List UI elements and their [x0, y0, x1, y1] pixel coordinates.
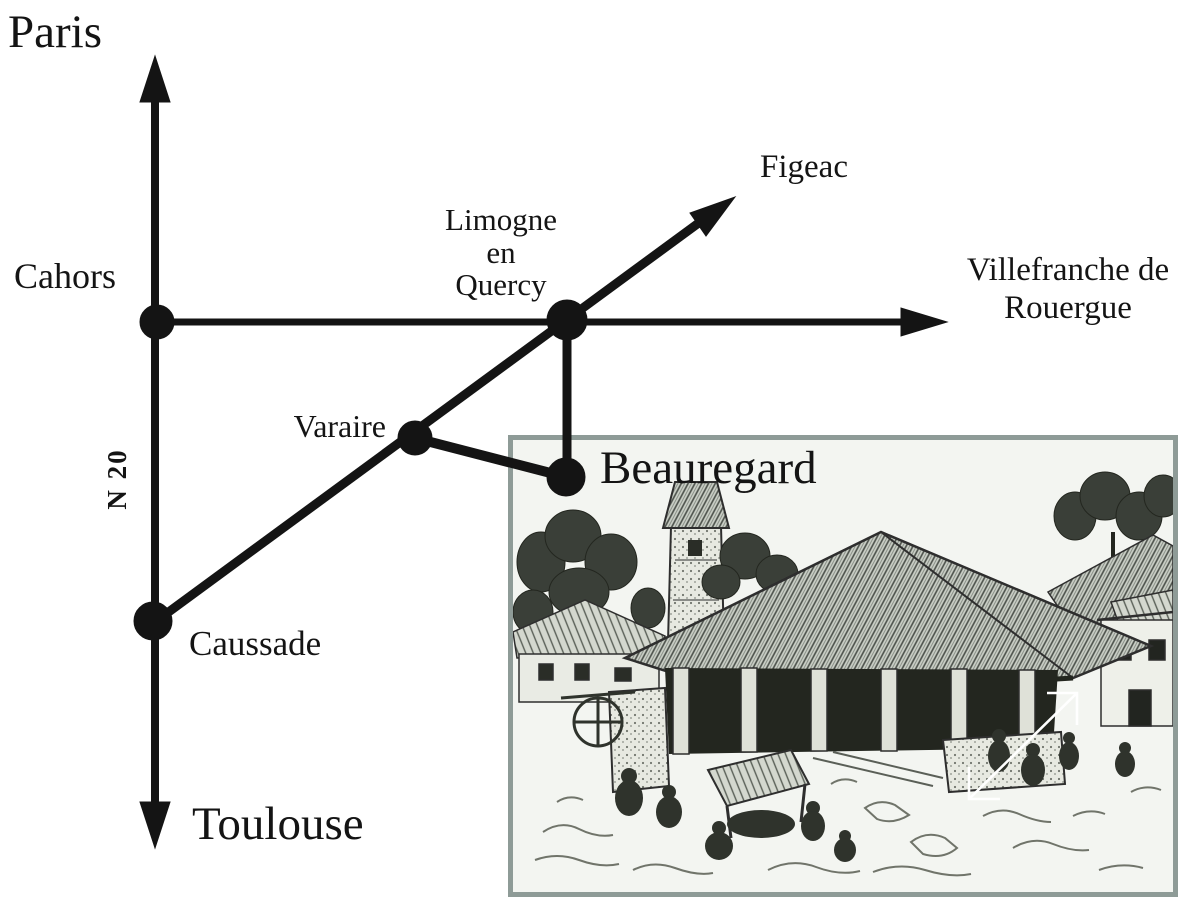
- town-dot-caussade: [134, 602, 172, 640]
- town-label-varaire: Varaire: [266, 410, 386, 444]
- destination-label-figeac: Figeac: [760, 150, 848, 185]
- town-label-cahors: Cahors: [14, 258, 116, 296]
- town-dot-cahors: [140, 305, 174, 339]
- road-label-n20: N 20: [103, 448, 131, 509]
- road-varaire-beauregard: [415, 438, 566, 477]
- town-dot-beauregard: [547, 458, 585, 496]
- town-label-beauregard: Beauregard: [600, 444, 817, 493]
- road-caussade-figeac: [155, 222, 700, 622]
- destination-label-paris: Paris: [8, 8, 102, 57]
- town-dot-limogne: [547, 300, 587, 340]
- town-label-limogne-en-quercy: Limogne en Quercy: [445, 204, 557, 302]
- arrowhead-toulouse: [140, 802, 170, 848]
- destination-label-villefranche: Villefranche de Rouergue: [967, 252, 1169, 328]
- arrowhead-paris: [140, 56, 170, 102]
- arrowhead-figeac: [690, 197, 735, 236]
- arrowhead-villefranche: [901, 308, 947, 336]
- town-label-caussade: Caussade: [189, 626, 321, 663]
- road-map: Paris Cahors N 20 Limogne en Quercy Fige…: [0, 0, 1200, 924]
- destination-label-toulouse: Toulouse: [192, 800, 364, 849]
- town-dot-varaire: [398, 421, 432, 455]
